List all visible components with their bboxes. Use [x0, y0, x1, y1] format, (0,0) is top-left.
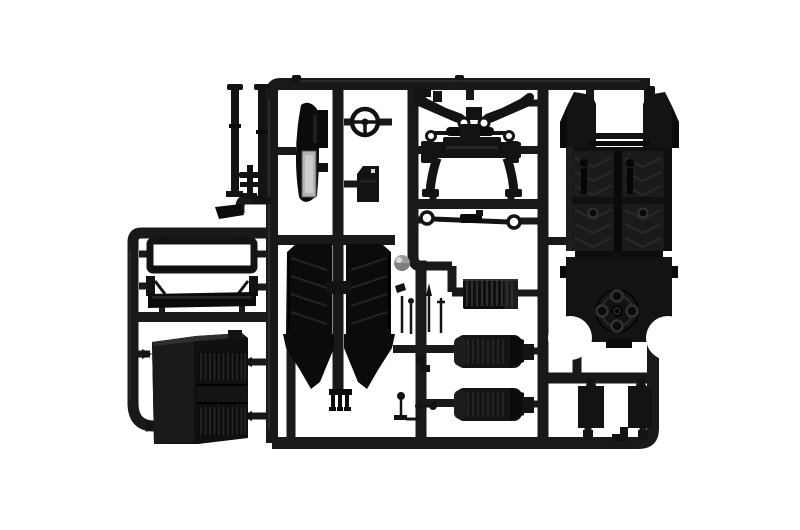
door-panel-right: [344, 244, 395, 389]
ribbed-panel: [463, 279, 518, 309]
seat-bottom: [454, 388, 534, 421]
wheel-arch-cutout: [548, 316, 592, 360]
wheel-arch-cutout: [646, 316, 690, 360]
gear-knob-ball: [394, 255, 410, 271]
sprue-photo: [0, 0, 800, 530]
cab-rear-panel: [146, 276, 258, 308]
seat-middle: [454, 335, 534, 368]
air-filter-box: [357, 166, 379, 202]
fork-part: [329, 389, 352, 411]
center-tab: [612, 427, 628, 441]
front-axle: [421, 137, 522, 197]
hub-detail: [596, 290, 638, 332]
exhaust-shield: [296, 103, 328, 202]
window-frame: [150, 236, 254, 270]
photo-stage: [0, 0, 800, 530]
steering-wheel: [352, 109, 378, 135]
cross-lever-part: [239, 165, 260, 199]
exhaust-stack-left: [226, 84, 243, 197]
radiator-grille: [152, 330, 248, 444]
cab-floor-panel: [560, 92, 679, 258]
panel-connector: [327, 281, 351, 294]
chassis-rear-panel: [548, 257, 690, 360]
pedal-part: [215, 204, 244, 219]
tie-rod: [421, 210, 520, 228]
